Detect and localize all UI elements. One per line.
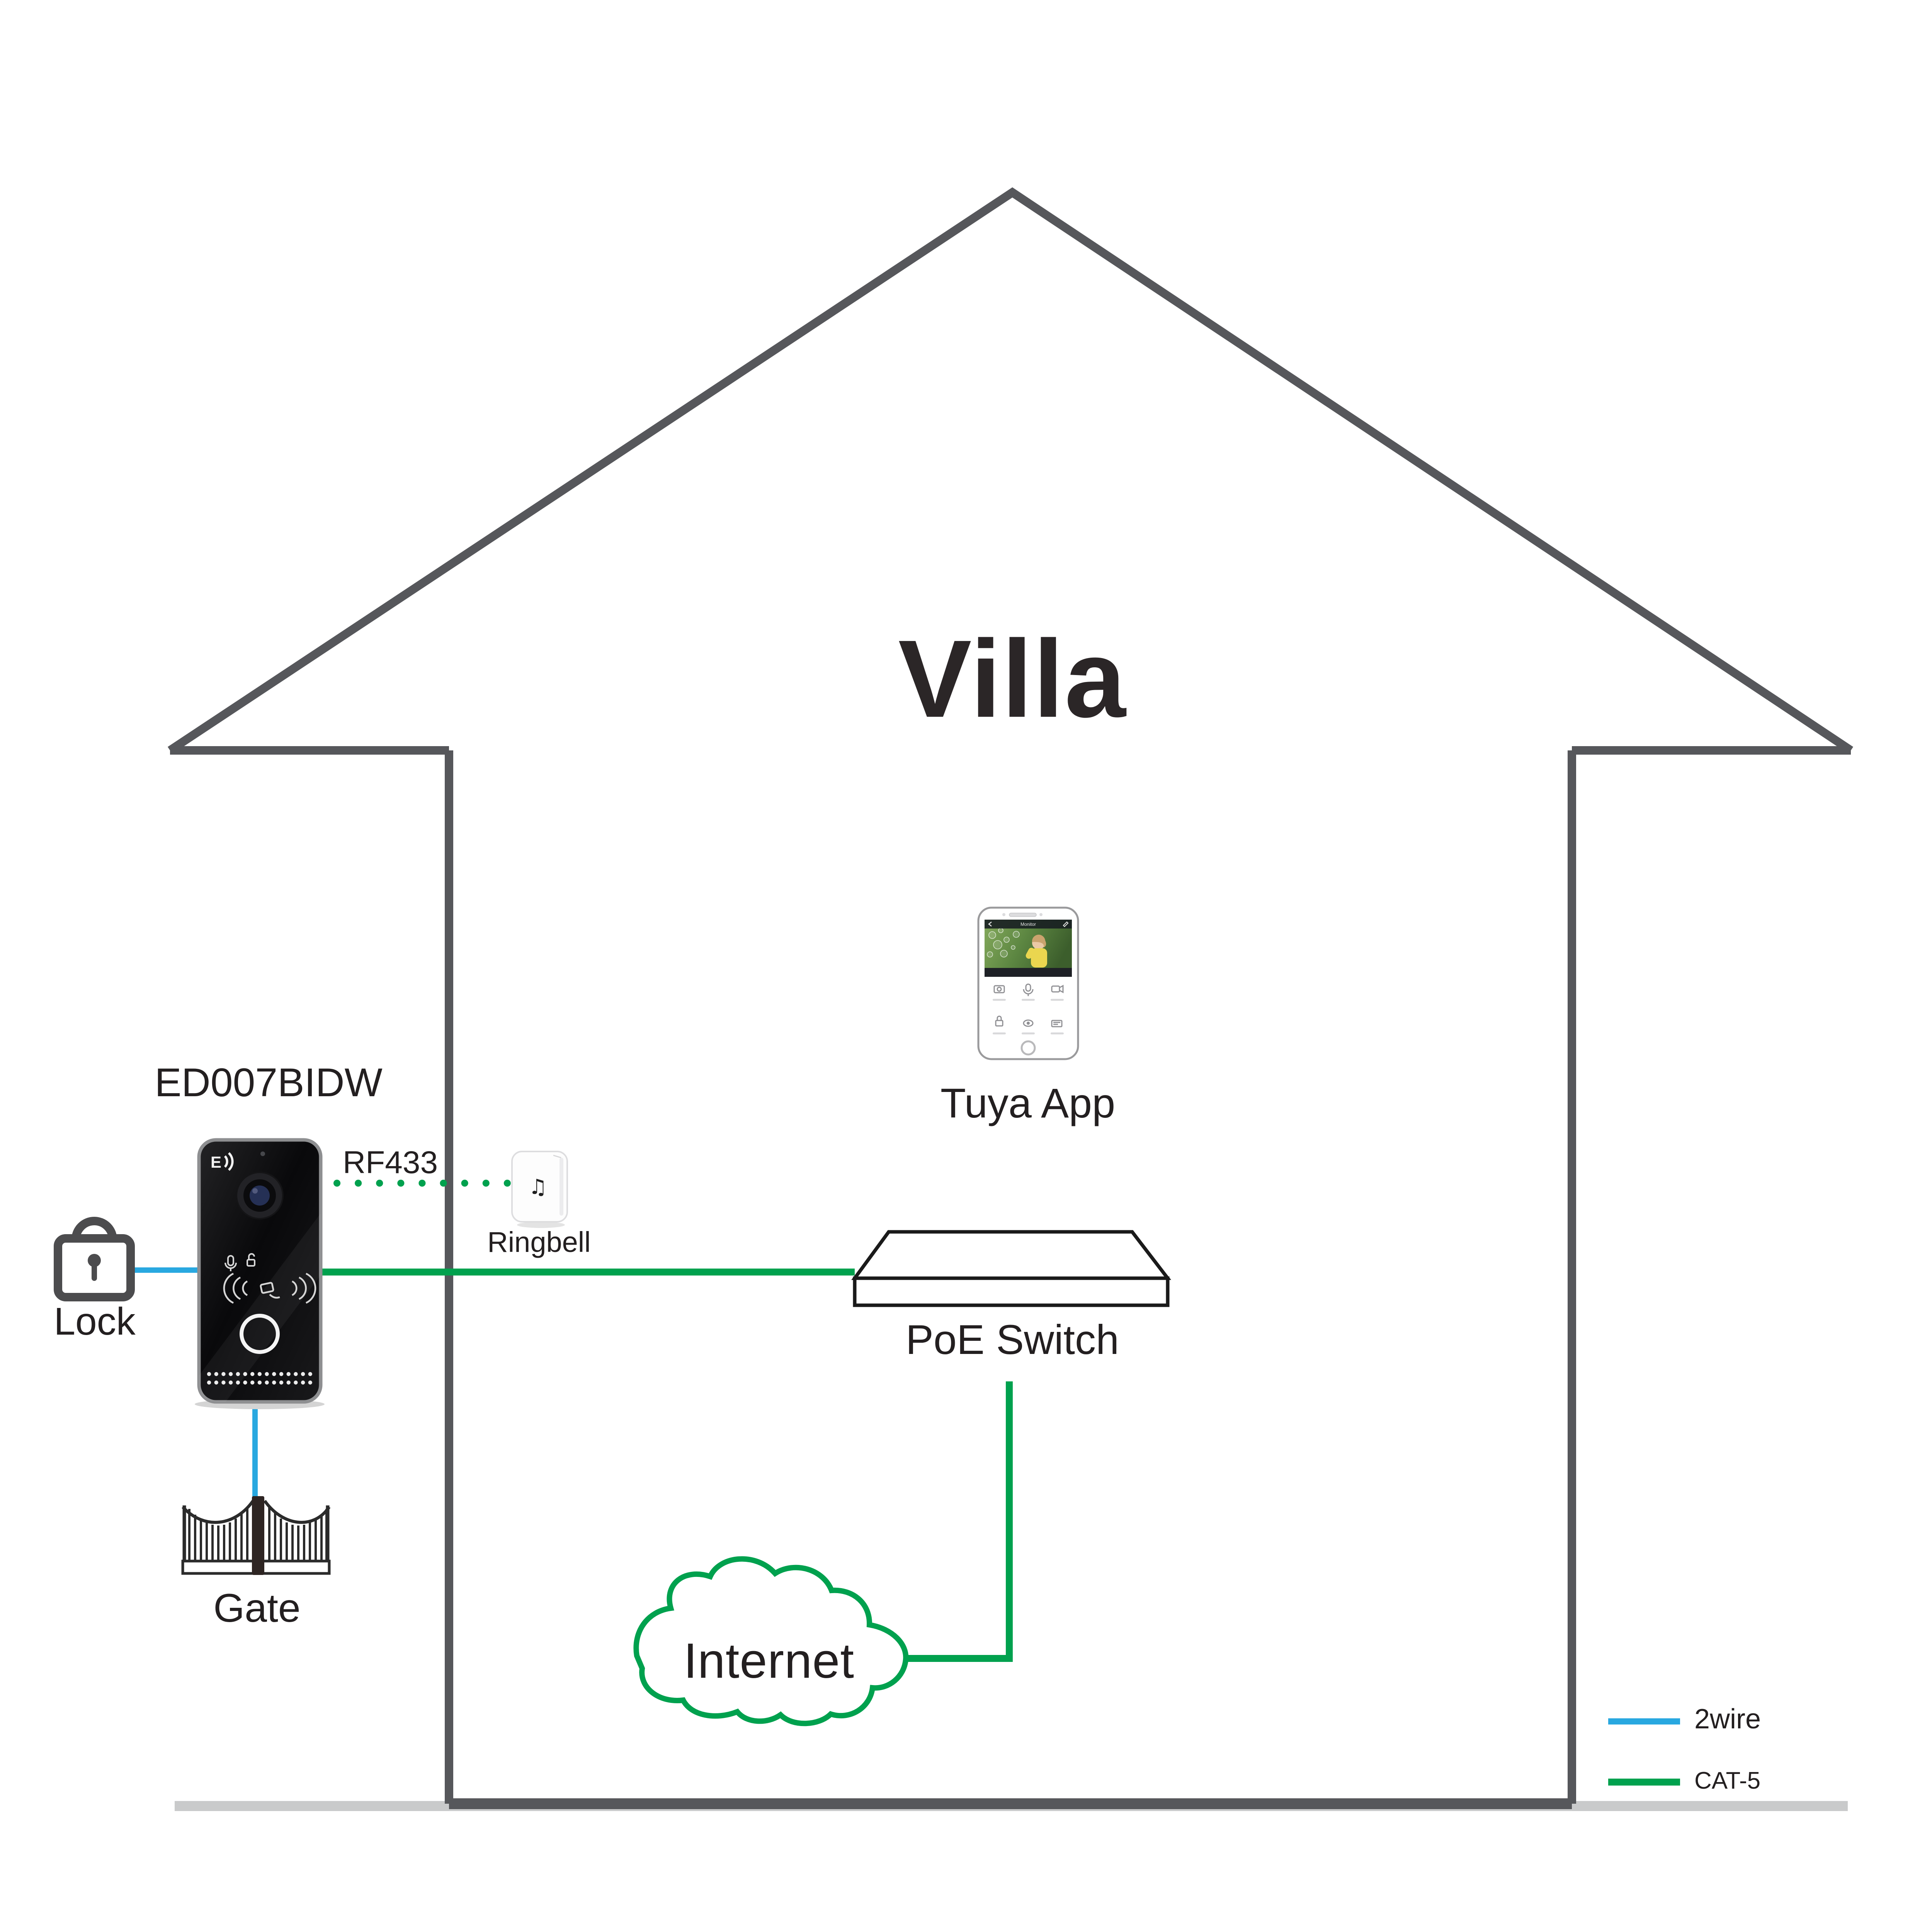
switch-front-face	[855, 1278, 1168, 1305]
lock-icon	[58, 1221, 131, 1297]
legend-cat5-label: CAT-5	[1694, 1768, 1810, 1793]
gate-icon	[183, 1496, 329, 1575]
switch-top-face	[855, 1232, 1168, 1278]
phone-screen-title: Monitor	[1020, 922, 1036, 927]
camera-lens-icon	[236, 1172, 283, 1219]
gate-center-post	[252, 1496, 264, 1575]
poe-switch-label: PoE Switch	[900, 1318, 1124, 1361]
rf433-label: RF433	[340, 1146, 440, 1179]
doorbell-device: E	[195, 1140, 325, 1437]
legend	[1608, 1721, 1680, 1782]
doorbell-model-label: ED007BIDW	[143, 1062, 394, 1104]
villa-wiring-diagram: E	[0, 0, 1932, 1932]
ringbell-device: ♫	[512, 1151, 567, 1228]
internet-label: Internet	[680, 1635, 858, 1687]
lock-label: Lock	[46, 1301, 143, 1342]
diagram-graphics: E	[0, 0, 1932, 1932]
tuya-app-label: Tuya App	[931, 1081, 1124, 1125]
tuya-phone: Monitor	[978, 908, 1078, 1059]
phone-earpiece	[1009, 913, 1036, 917]
svg-text:E: E	[211, 1153, 221, 1171]
gate-label: Gate	[205, 1587, 309, 1629]
poe-switch-box	[855, 1232, 1168, 1305]
cable-switch-to-internet	[907, 1381, 1009, 1658]
mic-pinhole	[260, 1151, 265, 1156]
video-bottom-strip	[985, 968, 1072, 977]
music-note-icon: ♫	[529, 1175, 547, 1199]
legend-2wire-label: 2wire	[1694, 1705, 1810, 1734]
villa-title: Villa	[819, 621, 1206, 737]
phone-home-button[interactable]	[1022, 1041, 1035, 1054]
speaker-grille	[206, 1371, 315, 1387]
ringbell-label: Ringbell	[479, 1227, 599, 1257]
